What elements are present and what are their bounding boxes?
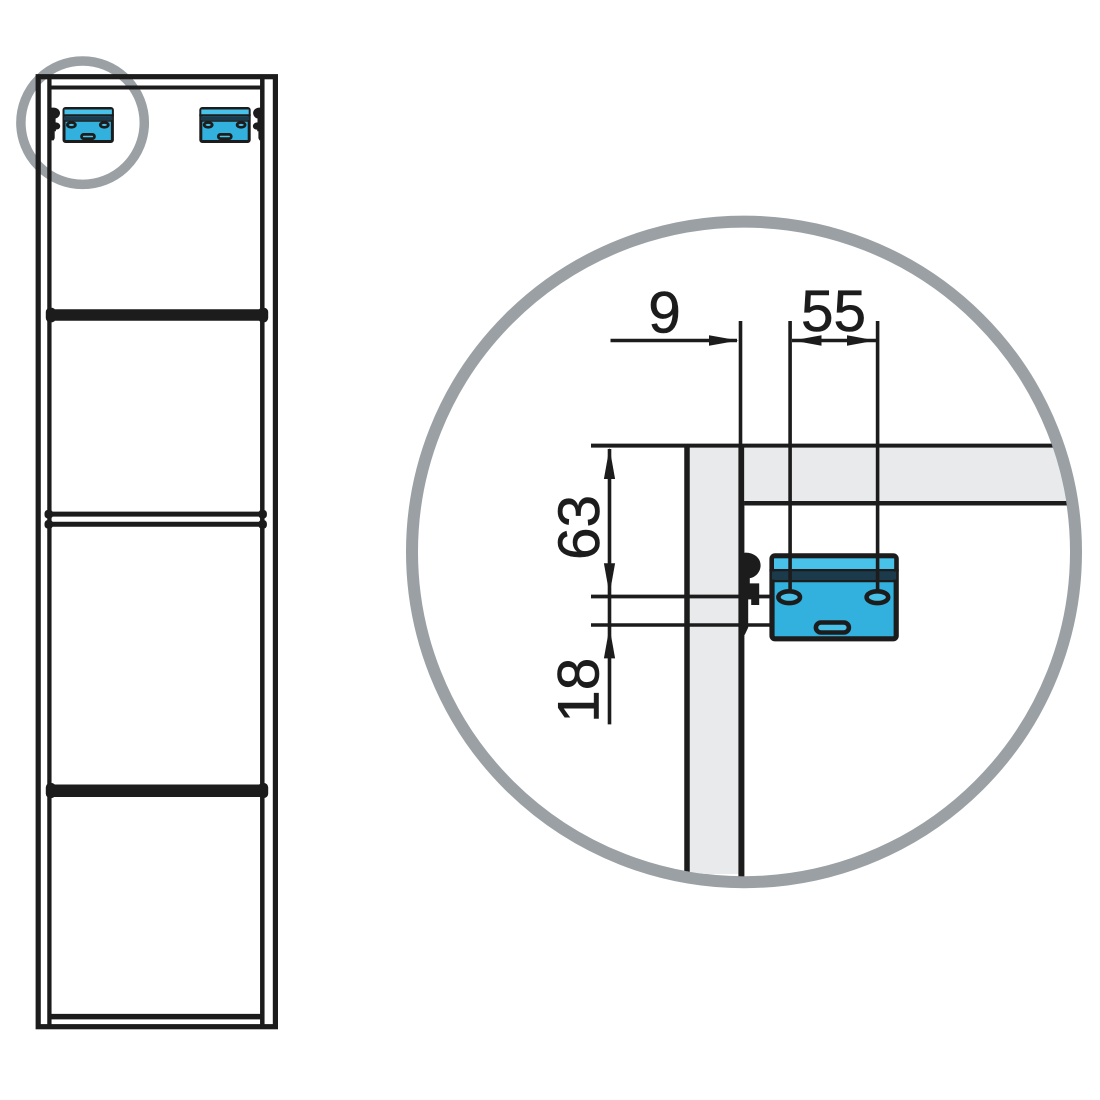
svg-text:18: 18 (546, 658, 611, 723)
svg-text:9: 9 (648, 281, 681, 346)
svg-text:55: 55 (801, 279, 866, 344)
svg-text:63: 63 (547, 495, 612, 560)
